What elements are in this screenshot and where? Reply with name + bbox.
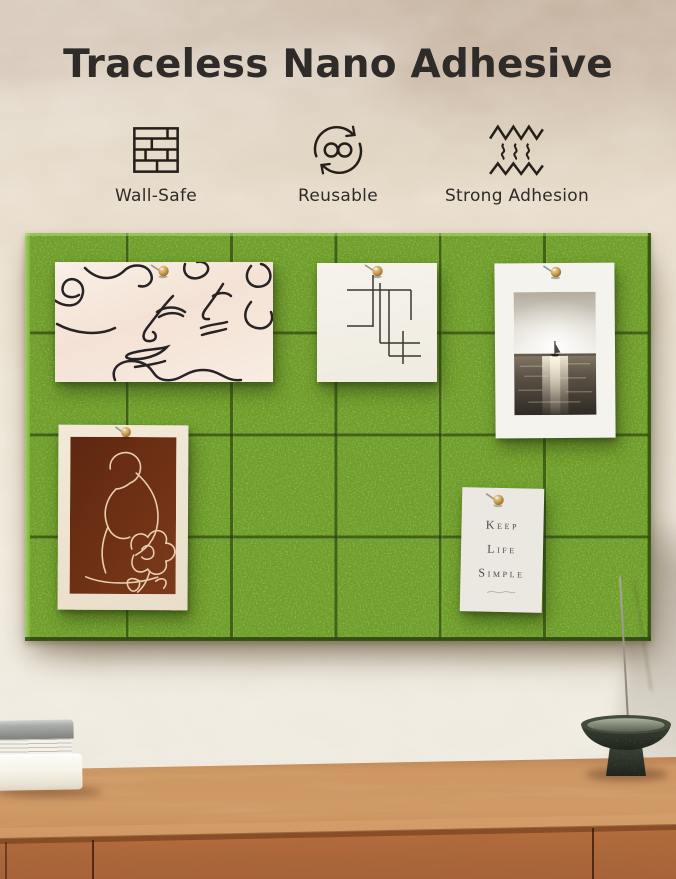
feature-label-reusable: Reusable <box>268 186 408 206</box>
board-right-edge <box>648 233 651 641</box>
drawer-seam-left <box>92 840 94 879</box>
top-book-cover <box>0 719 74 739</box>
pinned-quote-card: Keep Life Simple <box>460 487 545 613</box>
board-left-edge <box>25 233 30 641</box>
pinned-abstract-faces-line-art <box>55 262 273 382</box>
push-pin <box>362 262 386 279</box>
push-pin <box>540 263 564 280</box>
geometric-line-drawing <box>317 263 437 382</box>
push-pin <box>148 262 172 279</box>
feature-reusable: Reusable <box>268 120 408 216</box>
felt-pin-board: Keep Life Simple <box>25 233 651 641</box>
board-bottom-edge <box>25 637 651 641</box>
figure-line-drawing <box>70 437 177 595</box>
pinned-geometric-line-sketch <box>317 263 437 382</box>
incense-pedestal-bowl <box>580 712 672 780</box>
reuse-arrows-infinity-icon <box>268 122 408 178</box>
feature-wall-safe: Wall-Safe <box>86 120 226 216</box>
quote-line-2: Life <box>461 541 543 558</box>
push-pin <box>110 423 134 440</box>
quote-line-3: Simple <box>460 565 542 582</box>
feature-strong-adhesion: Strong Adhesion <box>426 120 608 216</box>
sailboat-seascape <box>514 292 597 416</box>
adhesion-zigzag-icon <box>426 122 608 178</box>
wood-sideboard <box>0 752 676 879</box>
stacked-books <box>0 717 93 797</box>
pinned-sailboat-photo-card <box>494 263 615 439</box>
quote-line-1: Keep <box>461 517 543 534</box>
board-top-edge <box>25 233 651 236</box>
feature-label-wall-safe: Wall-Safe <box>86 186 226 206</box>
feature-label-strong-adhesion: Strong Adhesion <box>426 186 608 206</box>
drawer-seam-left-edge <box>5 842 7 879</box>
drawer-seam-right <box>592 828 594 879</box>
push-pin <box>483 491 507 508</box>
brick-wall-icon <box>86 122 226 178</box>
bottom-book <box>0 753 83 791</box>
pinned-reclining-figure-art <box>58 425 189 611</box>
faces-line-drawing <box>55 262 273 382</box>
signature-scribble <box>485 588 517 597</box>
top-book-pages <box>0 738 72 754</box>
headline: Traceless Nano Adhesive <box>0 42 676 87</box>
product-marketing-image: Traceless Nano Adhesive Wall-Safe Reusab… <box>0 0 676 879</box>
